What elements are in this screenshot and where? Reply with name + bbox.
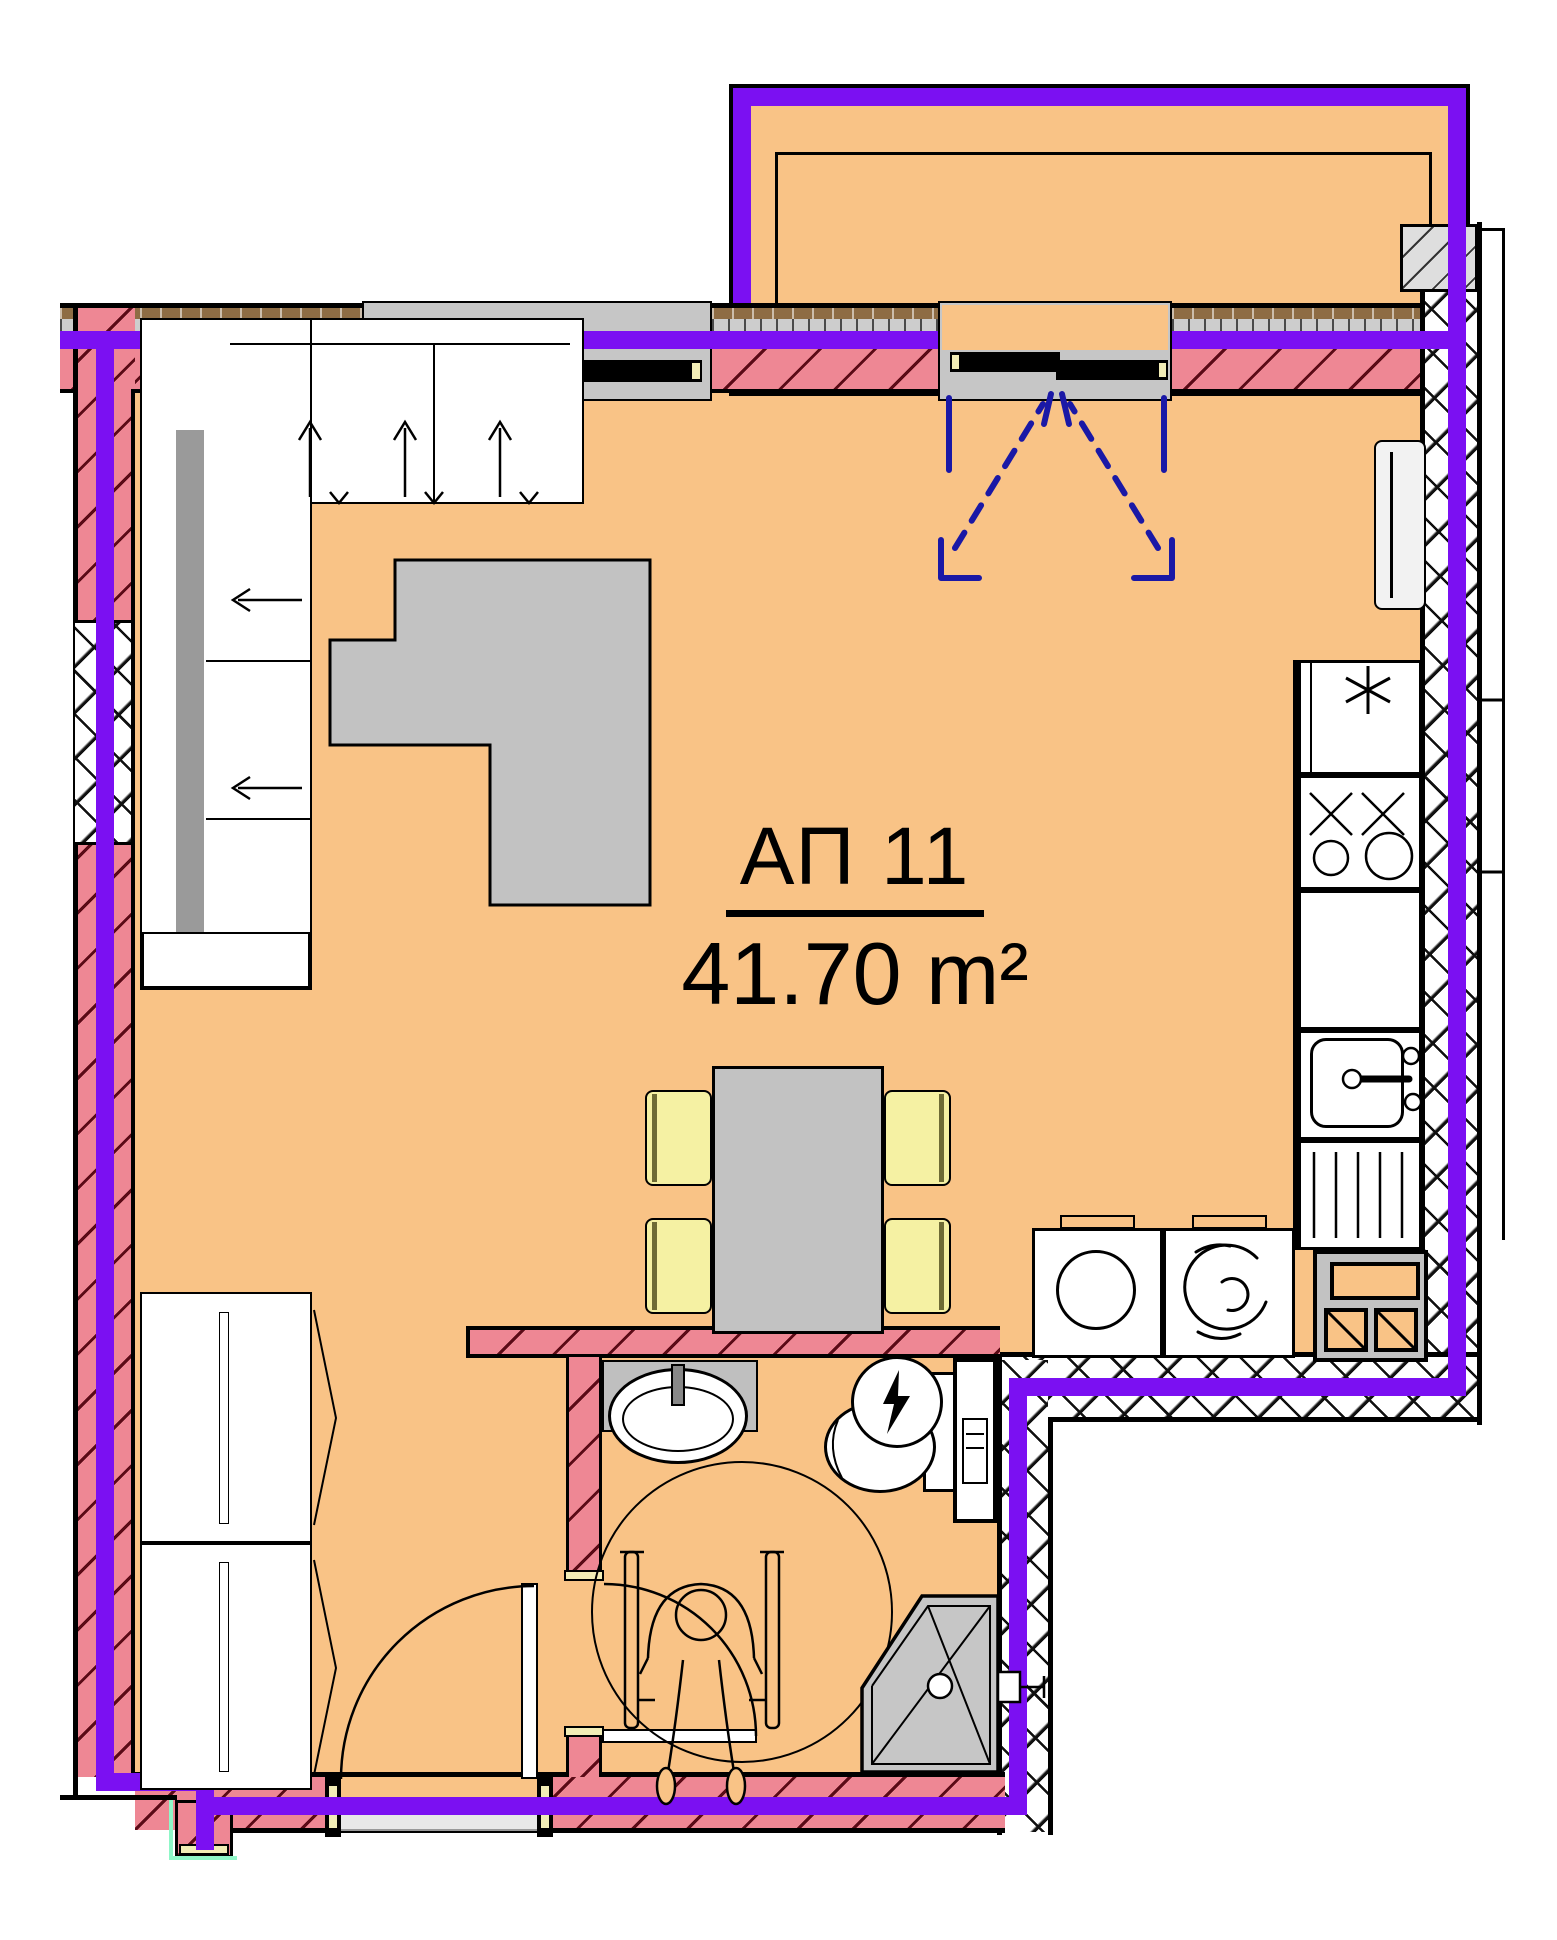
floor-plan: АП 11 41.70 m² bbox=[0, 0, 1557, 1940]
coffee-table bbox=[330, 560, 650, 905]
facade-ticks bbox=[1482, 700, 1502, 872]
wardrobe-door-ticks bbox=[314, 1310, 336, 1775]
lightning-bolt-icon bbox=[883, 1370, 910, 1434]
plan-linework bbox=[0, 0, 1557, 1940]
vent-cell-diagonals bbox=[1328, 1312, 1414, 1348]
kitchen-faucet-icon bbox=[1343, 1048, 1421, 1110]
dryer-spiral-icon bbox=[1185, 1245, 1266, 1339]
stove-burners-icon bbox=[1310, 793, 1412, 879]
toilet-seat-line bbox=[833, 1420, 842, 1478]
fridge-star-icon bbox=[1346, 666, 1390, 714]
drainer-grooves bbox=[1314, 1152, 1402, 1238]
shower-cabin bbox=[862, 1596, 1050, 1772]
shower-head-icon bbox=[998, 1672, 1050, 1702]
balcony-door-swing bbox=[941, 394, 1172, 578]
service-shaft-lines bbox=[966, 1434, 984, 1448]
entrance-door-arc bbox=[341, 1586, 534, 1779]
